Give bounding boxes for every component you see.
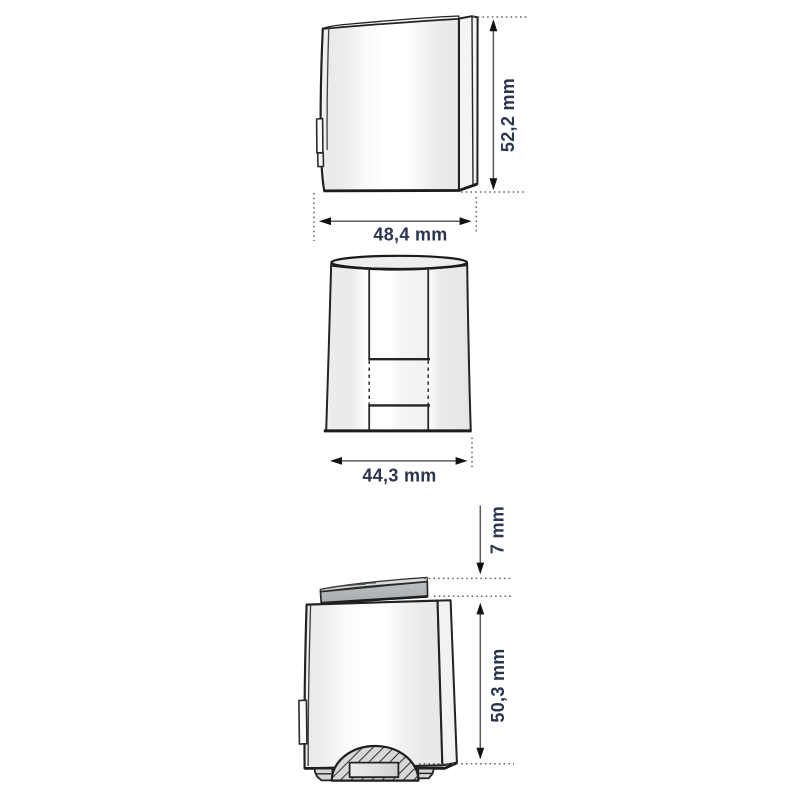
svg-text:7 mm: 7 mm [488,506,508,554]
svg-text:50,3 mm: 50,3 mm [488,648,508,722]
svg-text:52,2 mm: 52,2 mm [498,78,518,152]
svg-text:48,4 mm: 48,4 mm [373,224,447,244]
svg-text:44,3 mm: 44,3 mm [362,465,436,485]
